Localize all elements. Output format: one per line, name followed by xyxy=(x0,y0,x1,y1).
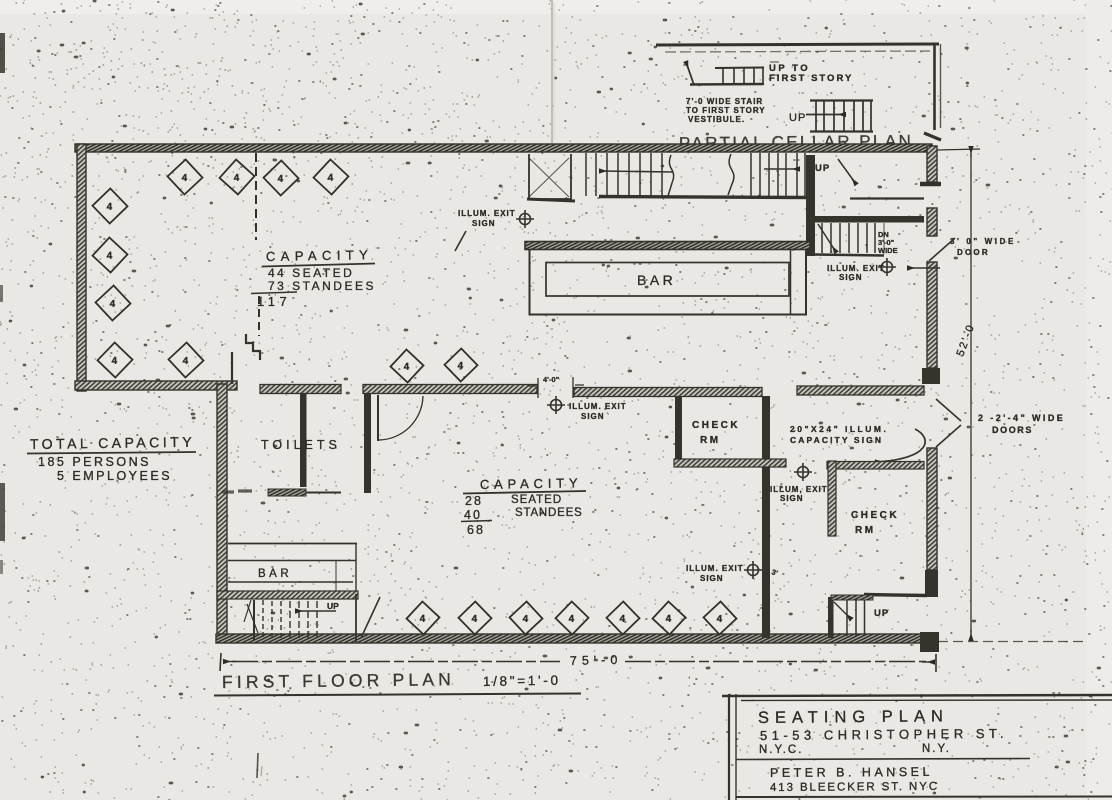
svg-text:4: 4 xyxy=(419,614,425,625)
svg-text:CHECK: CHECK xyxy=(851,510,899,521)
svg-text:4: 4 xyxy=(522,614,528,625)
svg-text:UP: UP xyxy=(327,601,339,611)
svg-text:ILLUM. EXIT: ILLUM. EXIT xyxy=(569,402,627,411)
svg-text:117: 117 xyxy=(257,294,291,309)
svg-text:SEATING PLAN: SEATING PLAN xyxy=(758,707,949,727)
svg-text:ILLUM. EXIT: ILLUM. EXIT xyxy=(686,564,744,573)
svg-text:TOILETS: TOILETS xyxy=(261,438,341,452)
svg-text:68: 68 xyxy=(467,523,485,537)
svg-text:TO FIRST STORY: TO FIRST STORY xyxy=(686,106,766,115)
svg-text:CAPACITY: CAPACITY xyxy=(480,475,583,492)
svg-text:4: 4 xyxy=(619,614,625,625)
svg-text:PETER B. HANSEL: PETER B. HANSEL xyxy=(770,765,933,780)
svg-text:CHECK: CHECK xyxy=(692,420,740,431)
svg-text:4: 4 xyxy=(403,362,409,373)
svg-text:4: 4 xyxy=(109,299,115,310)
svg-text:51-53 CHRISTOPHER ST.: 51-53 CHRISTOPHER ST. xyxy=(760,726,1008,743)
svg-text:UP: UP xyxy=(789,112,806,124)
svg-text:SIGN: SIGN xyxy=(780,494,804,503)
svg-text:4: 4 xyxy=(106,202,112,213)
svg-text:ILLUM, EXIT: ILLUM, EXIT xyxy=(770,485,828,494)
svg-text:DOOR: DOOR xyxy=(957,248,990,257)
svg-text:4: 4 xyxy=(327,173,333,184)
svg-text:413 BLEECKER ST. NYC: 413 BLEECKER ST. NYC xyxy=(770,781,939,794)
svg-text:VESTIBULE.: VESTIBULE. xyxy=(688,115,745,124)
svg-text:4'-0": 4'-0" xyxy=(543,375,560,384)
svg-text:4: 4 xyxy=(716,614,722,625)
svg-text:TOTAL CAPACITY: TOTAL CAPACITY xyxy=(30,434,195,452)
svg-text:CAPACITY: CAPACITY xyxy=(266,247,373,264)
svg-text:4: 4 xyxy=(112,356,118,367)
svg-text:SIGN: SIGN xyxy=(700,574,724,583)
svg-text:40: 40 xyxy=(464,508,482,522)
svg-text:WIDE: WIDE xyxy=(878,246,898,255)
svg-text:3' 0" WIDE: 3' 0" WIDE xyxy=(950,237,1016,246)
svg-text:75'-0: 75'-0 xyxy=(570,653,623,668)
svg-text:N.Y.: N.Y. xyxy=(922,743,951,755)
svg-text:5 EMPLOYEES: 5 EMPLOYEES xyxy=(57,469,172,483)
svg-text:STANDEES: STANDEES xyxy=(515,507,583,519)
svg-text:4: 4 xyxy=(457,361,463,372)
svg-text:RM: RM xyxy=(855,525,876,536)
svg-text:4: 4 xyxy=(665,614,671,625)
svg-text:1/8"=1'-0: 1/8"=1'-0 xyxy=(483,673,561,689)
svg-text:DOORS: DOORS xyxy=(992,425,1033,435)
svg-text:BAR: BAR xyxy=(258,568,292,580)
svg-text:RM: RM xyxy=(700,435,721,446)
svg-text:4: 4 xyxy=(181,173,187,184)
svg-text:4: 4 xyxy=(106,251,112,262)
svg-text:20"X24" ILLUM.: 20"X24" ILLUM. xyxy=(790,424,888,434)
svg-text:FIRST STORY: FIRST STORY xyxy=(769,73,853,84)
svg-text:BAR: BAR xyxy=(637,272,676,288)
svg-text:UP: UP xyxy=(815,163,830,174)
svg-text:4: 4 xyxy=(471,614,477,625)
svg-text:CAPACITY SIGN: CAPACITY SIGN xyxy=(790,435,883,445)
svg-text:4: 4 xyxy=(569,614,575,625)
svg-text:SIGN: SIGN xyxy=(472,219,496,228)
svg-text:44 SEATED: 44 SEATED xyxy=(268,266,354,280)
svg-text:73 STANDEES: 73 STANDEES xyxy=(268,279,376,293)
svg-text:SIGN: SIGN xyxy=(581,412,605,421)
svg-text:SIGN: SIGN xyxy=(839,273,863,282)
svg-text:185 PERSONS: 185 PERSONS xyxy=(38,455,151,469)
svg-text:ILLUM. EXIT: ILLUM. EXIT xyxy=(827,264,885,273)
svg-text:SEATED: SEATED xyxy=(511,494,562,506)
svg-text:FIRST FLOOR PLAN: FIRST FLOOR PLAN xyxy=(222,669,455,692)
svg-text:UP: UP xyxy=(874,608,889,619)
svg-text:N.Y.C.: N.Y.C. xyxy=(759,744,803,756)
svg-text:ILLUM. EXIT: ILLUM. EXIT xyxy=(458,209,516,218)
svg-text:4: 4 xyxy=(233,173,240,184)
svg-text:4: 4 xyxy=(182,356,188,367)
svg-text:28: 28 xyxy=(465,494,483,508)
svg-text:7'-0 WIDE STAIR: 7'-0 WIDE STAIR xyxy=(686,97,763,106)
svg-text:4: 4 xyxy=(277,174,283,185)
svg-text:2 -2'-4" WIDE: 2 -2'-4" WIDE xyxy=(978,413,1065,423)
